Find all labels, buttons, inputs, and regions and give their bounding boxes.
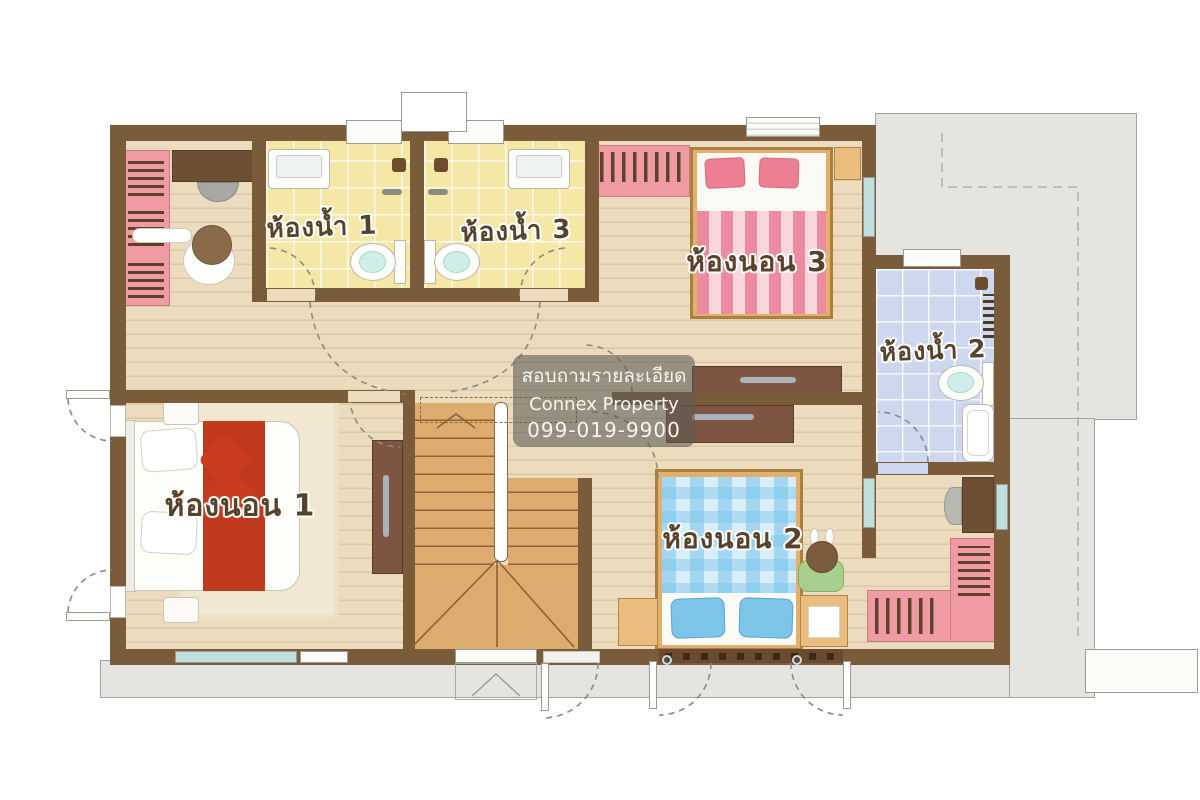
window-casement-gap bbox=[110, 586, 126, 618]
closet-desk bbox=[172, 150, 258, 182]
wall-bathroom-mid bbox=[410, 133, 424, 302]
watermark-box: สอบถามรายละเอียด Connex Property 099-019… bbox=[513, 355, 695, 447]
toilet-seat bbox=[947, 372, 974, 393]
window-casement-gap bbox=[110, 405, 126, 437]
window-casement-leaf bbox=[66, 612, 110, 621]
window-stair-bottom bbox=[455, 649, 537, 663]
sliding-door-track-dots bbox=[665, 653, 837, 660]
window-bedroom3-right bbox=[863, 177, 875, 237]
wardrobe-slats bbox=[958, 546, 990, 596]
nightstand bbox=[834, 147, 861, 180]
wall-right bbox=[994, 255, 1010, 665]
window-bedroom2-right bbox=[863, 478, 875, 528]
vanity-desk bbox=[962, 477, 994, 533]
vanity-chair bbox=[944, 487, 962, 525]
shower-valve-icon bbox=[428, 189, 448, 195]
bathtub-inner bbox=[967, 410, 989, 456]
wall-stair-left bbox=[403, 390, 415, 665]
door-post bbox=[649, 661, 657, 709]
watermark-line2: Connex Property bbox=[529, 394, 679, 415]
window-outer-right bbox=[996, 484, 1008, 530]
toilet-seat bbox=[359, 251, 386, 273]
bed-3-pillow bbox=[758, 157, 799, 188]
toilet-seat bbox=[443, 251, 470, 273]
roof-area-right bbox=[1008, 418, 1095, 698]
wardrobe-slats bbox=[875, 598, 935, 634]
door-roller-icon bbox=[662, 655, 672, 665]
watermark-line1: สอบถามรายละเอียด bbox=[522, 361, 687, 391]
person-figure-head bbox=[192, 225, 232, 265]
bed-1-pillow bbox=[140, 427, 199, 473]
door-roller-icon bbox=[792, 655, 802, 665]
stairs-winders bbox=[408, 565, 578, 649]
bed-2-pillow bbox=[738, 597, 793, 639]
room-label-bedroom3: ห้องนอน 3 bbox=[686, 240, 827, 284]
bed-3-pillow bbox=[704, 157, 746, 189]
balcony-step-outline bbox=[455, 663, 537, 700]
shower-valve-icon bbox=[382, 189, 402, 195]
dresser-handle bbox=[383, 475, 389, 537]
floor-plan: ห้องน้ำ 1 ห้องน้ำ 3 ห้องนอน 3 ห้องน้ำ 2 … bbox=[0, 0, 1200, 800]
room-label-bathroom2: ห้องน้ำ 2 bbox=[879, 329, 987, 373]
stairs-handrail bbox=[494, 402, 508, 562]
window-balcony-right bbox=[1085, 649, 1198, 693]
room-label-bathroom1: ห้องน้ำ 1 bbox=[266, 205, 378, 250]
wall-bathroom3-right bbox=[585, 133, 599, 302]
wall-stair-right bbox=[578, 478, 592, 665]
wardrobe-shelf-left-slats bbox=[128, 258, 164, 298]
window-bathroom2 bbox=[903, 249, 961, 267]
door-opening bbox=[348, 391, 400, 402]
watermark-line3: 099-019-9900 bbox=[527, 418, 681, 442]
person-figure-head bbox=[806, 541, 838, 573]
stairs-left-flight bbox=[408, 403, 494, 565]
door-opening bbox=[878, 463, 928, 474]
room-label-bedroom1: ห้องนอน 1 bbox=[165, 483, 316, 530]
stairs-right-flight bbox=[508, 478, 578, 565]
floor-drain-icon bbox=[434, 158, 448, 172]
bed-2-pillow bbox=[670, 597, 725, 639]
floor-drain-icon bbox=[975, 277, 988, 290]
desk-paper bbox=[808, 606, 840, 638]
floor-drain-icon bbox=[392, 158, 406, 172]
person-figure-arm bbox=[132, 228, 192, 243]
door-balcony-gap bbox=[543, 651, 600, 663]
wall-bathroom1-left bbox=[252, 133, 266, 302]
sink-basin bbox=[276, 155, 322, 178]
clothes-rack-slats bbox=[600, 152, 682, 182]
door-balcony-leaf bbox=[541, 663, 549, 711]
wardrobe-shelf-left-slats bbox=[128, 158, 164, 196]
nightstand bbox=[618, 598, 658, 646]
door-opening bbox=[520, 289, 568, 301]
window-bedroom1-bottom bbox=[175, 651, 297, 663]
window-casement-leaf bbox=[66, 390, 110, 399]
window-bedroom1-bottom-2 bbox=[300, 651, 348, 663]
room-label-bedroom2: ห้องนอน 2 bbox=[662, 517, 803, 561]
door-post bbox=[843, 661, 851, 709]
dresser-handle bbox=[692, 414, 754, 420]
door-opening bbox=[267, 289, 315, 301]
shaft-outline bbox=[401, 92, 467, 132]
window-bedroom3-top bbox=[746, 117, 820, 137]
balcony-strip-bottom bbox=[100, 660, 1010, 698]
nightstand bbox=[163, 597, 199, 623]
window-awning bbox=[346, 120, 402, 144]
dresser-handle bbox=[740, 377, 796, 383]
room-label-bathroom3: ห้องน้ำ 3 bbox=[460, 209, 572, 254]
sink-basin bbox=[516, 155, 562, 178]
